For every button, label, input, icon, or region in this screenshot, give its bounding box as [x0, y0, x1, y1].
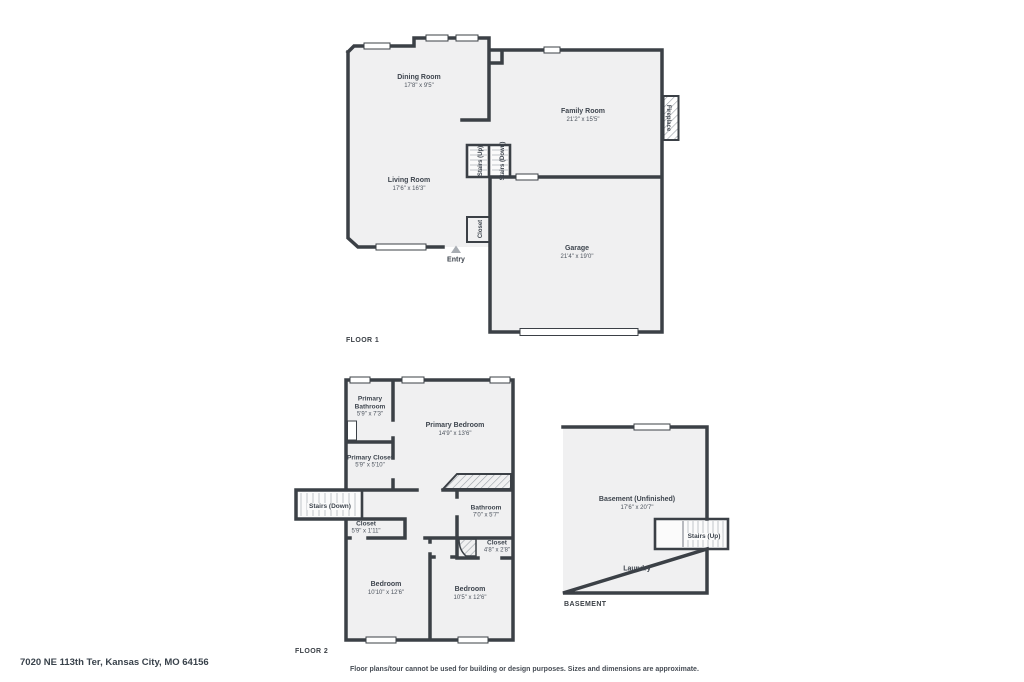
room-label-bedroom2-closet: Closet 4'8" x 2'8" [484, 539, 510, 554]
floor-plan-drawing [0, 0, 1024, 682]
room-label-basement-unfinished: Basement (Unfinished) 17'6" x 20'7" [599, 496, 675, 512]
disclaimer-text: Floor plans/tour cannot be used for buil… [350, 666, 699, 673]
room-label-family-room: Family Room 21'2" x 15'5" [561, 108, 605, 124]
room-label-bedroom-2: Bedroom 10'5" x 12'6" [454, 586, 487, 602]
label-entry: Entry [447, 257, 465, 266]
basement-window [634, 424, 670, 430]
room-label-primary-bedroom: Primary Bedroom 14'9" x 13'6" [426, 422, 485, 438]
room-label-laundry: Laundry [623, 566, 651, 575]
label-closet-floor1: Closet [469, 220, 487, 238]
room-label-primary-closet: Primary Closet 5'9" x 5'10" [345, 454, 395, 469]
room-label-garage: Garage 21'4" x 19'0" [561, 245, 594, 261]
label-stairs-up-basement: Stairs (Up) [686, 525, 723, 543]
label-stairs-up-floor1: Stairs (Up) [469, 146, 487, 176]
room-label-bathroom: Bathroom 7'0" x 5'7" [471, 504, 502, 519]
label-stairs-down-floor1: Stairs (Down) [491, 142, 509, 181]
floor-plan-page: Dining Room 17'8" x 9'5" Family Room 21'… [0, 0, 1024, 682]
room-label-hall-closet: Closet 5'9" x 1'11" [351, 520, 380, 535]
basement-title: BASEMENT [564, 601, 606, 608]
garage-door [520, 329, 638, 336]
room-label-primary-bathroom: Primary Bathroom 5'9" x 7'3" [345, 395, 395, 418]
floor2-title: FLOOR 2 [295, 648, 328, 655]
label-fireplace: Fireplace [662, 105, 680, 131]
property-address: 7020 NE 113th Ter, Kansas City, MO 64156 [20, 657, 209, 668]
room-label-bedroom-1: Bedroom 10'10" x 12'6" [368, 581, 404, 597]
bathroom-vanity [348, 421, 357, 440]
floor1-title: FLOOR 1 [346, 337, 379, 344]
room-label-dining-room: Dining Room 17'8" x 9'5" [397, 74, 441, 90]
label-stairs-down-floor2: Stairs (Down) [307, 495, 353, 513]
room-label-living-room: Living Room 17'6" x 16'3" [388, 177, 430, 193]
